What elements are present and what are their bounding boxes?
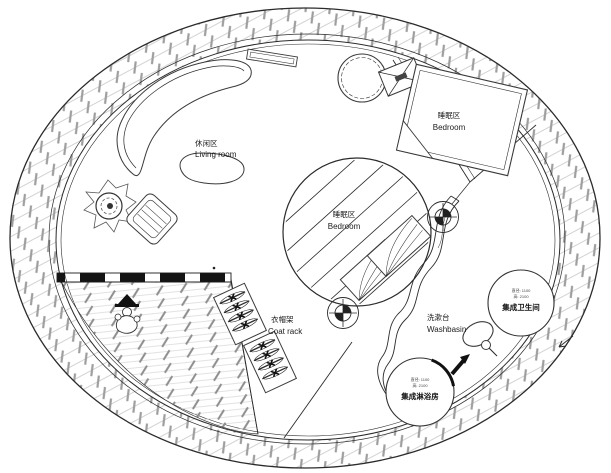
column-marker-2	[328, 298, 359, 329]
floor-plan-canvas: 直径: 1100 高: 2100 集成卫生间 直径: 1100 高: 2100 …	[0, 0, 611, 473]
round-table	[338, 54, 386, 102]
bathroom-pod-spec-height: 高: 2100	[513, 293, 529, 299]
bedroom-upper-label-zh: 睡眠区	[438, 111, 461, 120]
coat-rack-label-en: Coat rack	[268, 327, 303, 336]
shower-pod: 直径: 1100 高: 2100 集成淋浴房	[386, 358, 454, 426]
shower-pod-spec-height: 高: 2100	[412, 382, 428, 388]
floor-plan-svg: 直径: 1100 高: 2100 集成卫生间 直径: 1100 高: 2100 …	[0, 0, 611, 473]
bathroom-pod: 直径: 1100 高: 2100 集成卫生间	[488, 270, 554, 336]
print-dot	[213, 267, 216, 270]
bedroom-center-label-en: Bedroom	[328, 222, 361, 231]
bathroom-pod-spec-diameter: 直径: 1100	[512, 287, 532, 293]
coat-rack-label-zh: 衣帽架	[271, 314, 294, 324]
bedroom-center-label-zh: 睡眠区	[333, 210, 356, 219]
bathroom-pod-label: 集成卫生间	[501, 302, 540, 312]
column-marker-1	[428, 202, 459, 233]
shower-pod-spec-diameter: 直径: 1100	[411, 376, 431, 382]
section-wall	[57, 273, 231, 282]
washbasin-label-zh: 洗漱台	[427, 312, 450, 322]
living-room-label-zh: 休闲区	[195, 138, 218, 148]
washbasin-label-en: Washbasin	[427, 325, 466, 334]
living-room-label-en: Living room	[195, 150, 237, 159]
bedroom-upper-label-en: Bedroom	[433, 123, 466, 132]
shower-pod-label: 集成淋浴房	[400, 391, 439, 401]
